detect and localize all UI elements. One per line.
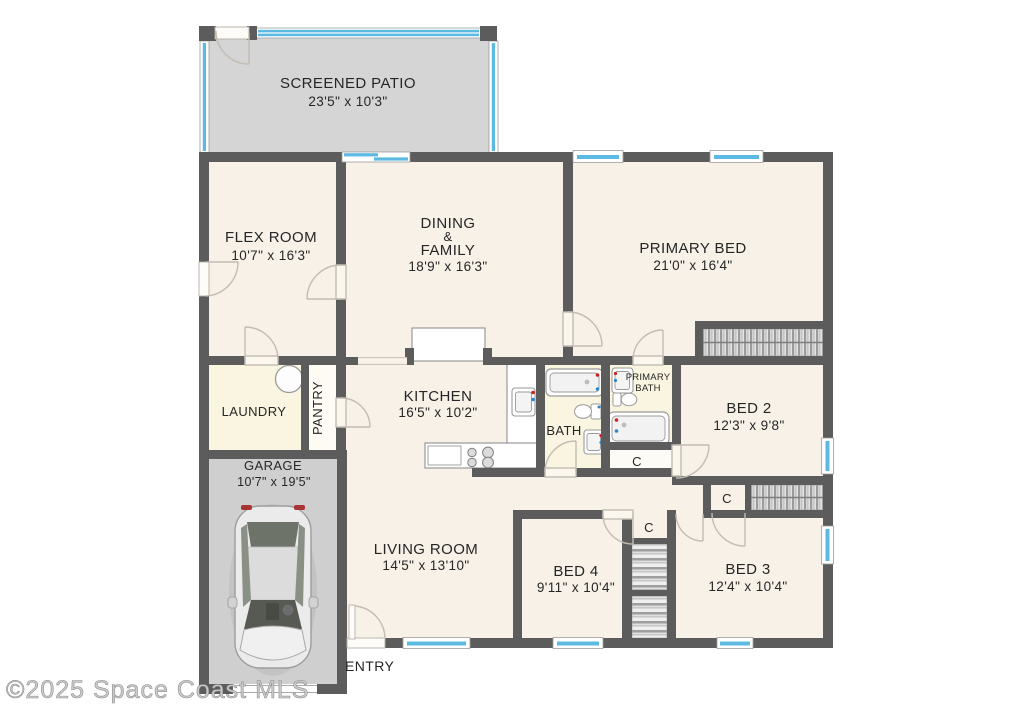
bed2-dims: 12'3" x 9'8" <box>713 418 784 433</box>
living-label: LIVING ROOM <box>374 541 478 558</box>
patio-post-right <box>480 26 497 41</box>
sliding-door <box>342 152 410 162</box>
window <box>403 638 470 649</box>
kitchen-sink-icon <box>512 388 535 416</box>
kitchen-island <box>412 328 485 361</box>
primary-bath-label-1: PRIMARY <box>626 372 671 383</box>
mls-watermark: ©2025 Space Coast MLS <box>6 676 309 704</box>
closet-label-2: C <box>722 491 732 506</box>
garage-dims: 10'7" x 19'5" <box>237 475 311 489</box>
car-icon <box>228 504 318 676</box>
bath-label: BATH <box>546 423 581 438</box>
laundry-fixtures <box>276 366 303 393</box>
floor-plan: SCREENED PATIO 23'5" x 10'3" FLEX ROOM 1… <box>0 0 1024 724</box>
floor-plan-svg: SCREENED PATIO 23'5" x 10'3" FLEX ROOM 1… <box>0 0 1024 724</box>
bed3-label: BED 3 <box>725 561 770 578</box>
pantry-label: PANTRY <box>310 381 325 435</box>
closet-label-1: C <box>632 454 642 469</box>
garage-label: GARAGE <box>244 458 302 473</box>
window <box>573 151 623 163</box>
living-dims: 14'5" x 13'10" <box>382 558 469 573</box>
flex-dims: 10'7" x 16'3" <box>231 248 310 263</box>
bath-toilet-icon <box>575 404 602 419</box>
patio-post-left <box>199 26 216 41</box>
dining-dims: 18'9" x 16'3" <box>408 259 487 274</box>
window <box>822 438 834 474</box>
window <box>553 638 603 649</box>
linen-closet-lower <box>632 596 667 638</box>
primary-bath-tub-icon <box>608 412 669 445</box>
flex-label: FLEX ROOM <box>225 229 317 246</box>
dining-label-3: FAMILY <box>421 242 476 259</box>
linen-closet-upper <box>632 544 667 590</box>
entry-label: ENTRY <box>345 658 394 674</box>
bed4-label: BED 4 <box>553 563 598 580</box>
cased-opening <box>358 357 407 365</box>
closet-label-3: C <box>644 520 654 535</box>
window <box>717 638 753 649</box>
dishwasher <box>428 446 461 465</box>
bed4-dims: 9'11" x 10'4" <box>537 580 615 595</box>
patio-dims: 23'5" x 10'3" <box>308 94 387 109</box>
patio-label: SCREENED PATIO <box>280 75 416 92</box>
bed2-label: BED 2 <box>726 400 771 417</box>
kitchen-label: KITCHEN <box>404 388 473 405</box>
kitchen-dims: 16'5" x 10'2" <box>398 405 477 420</box>
window <box>710 151 763 163</box>
primary-bed-dims: 21'0" x 16'4" <box>653 258 732 273</box>
primary-bed-label: PRIMARY BED <box>639 240 746 257</box>
utility-sink-icon <box>276 366 303 393</box>
primary-bath-toilet-icon <box>613 393 637 406</box>
primary-bath-label-2: BATH <box>635 383 660 394</box>
window <box>822 526 834 564</box>
bed3-dims: 12'4" x 10'4" <box>708 579 787 594</box>
laundry-label: LAUNDRY <box>222 404 287 419</box>
